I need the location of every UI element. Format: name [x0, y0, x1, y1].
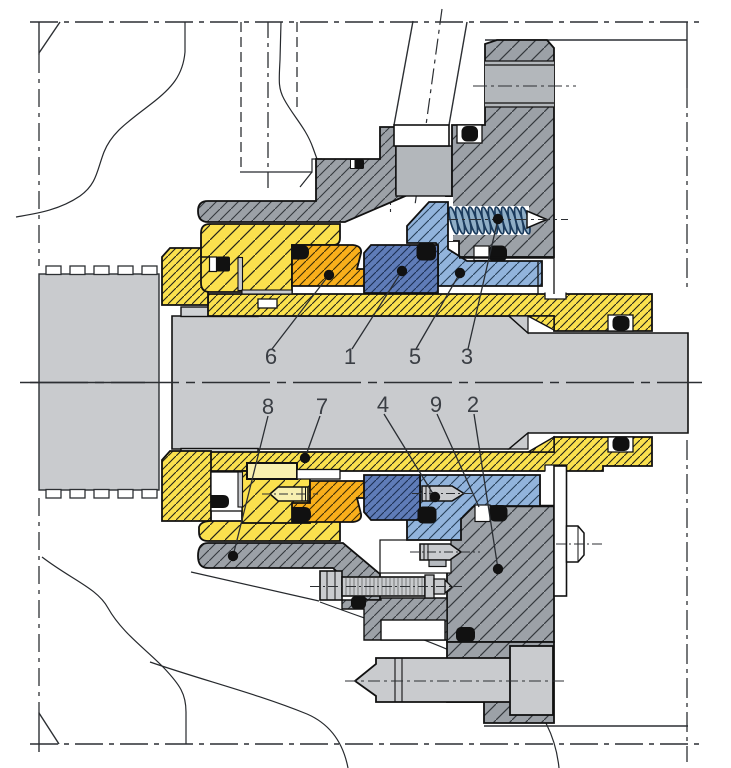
svg-text:2: 2 [467, 392, 479, 417]
svg-text:7: 7 [316, 394, 328, 419]
svg-text:1: 1 [344, 344, 356, 369]
svg-text:8: 8 [262, 394, 274, 419]
svg-text:5: 5 [409, 344, 421, 369]
svg-text:9: 9 [430, 392, 442, 417]
svg-text:3: 3 [461, 344, 473, 369]
svg-text:6: 6 [265, 344, 277, 369]
svg-text:4: 4 [377, 392, 389, 417]
